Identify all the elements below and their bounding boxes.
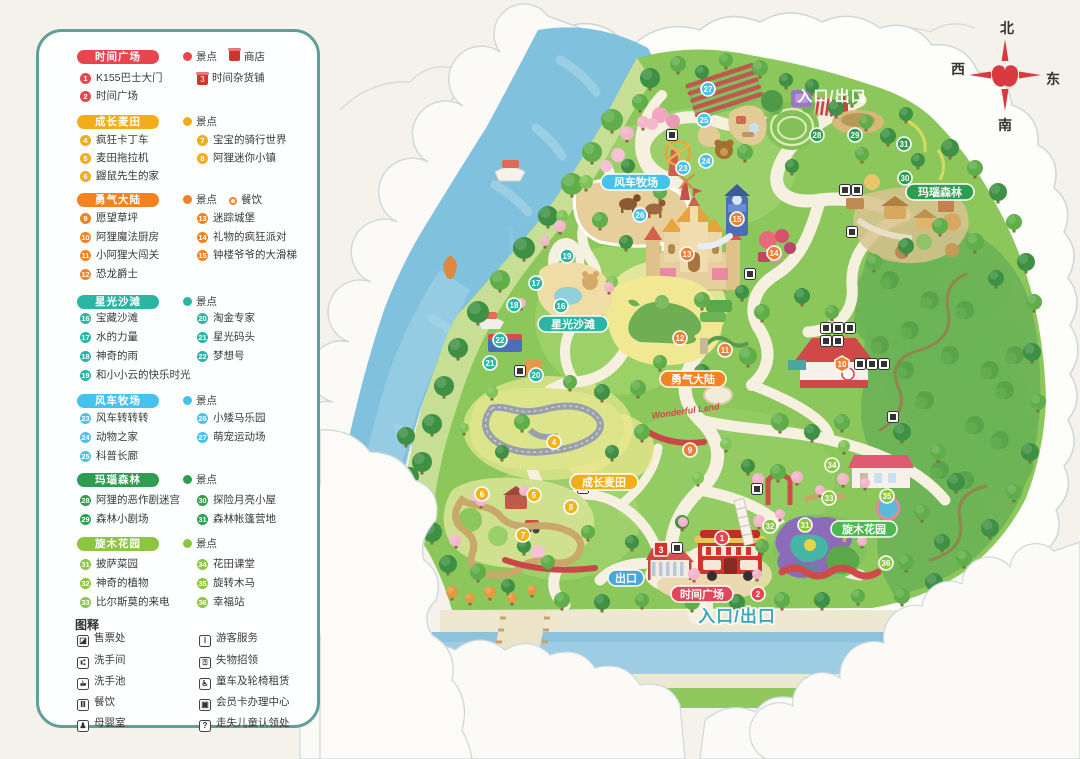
svg-text:玛瑙森林: 玛瑙森林 xyxy=(918,185,962,199)
svg-text:入口/出口: 入口/出口 xyxy=(797,87,866,105)
svg-text:32: 32 xyxy=(766,522,775,531)
svg-text:时间广场: 时间广场 xyxy=(680,587,724,601)
svg-text:27: 27 xyxy=(704,85,713,94)
svg-text:北: 北 xyxy=(1000,20,1014,36)
svg-text:4: 4 xyxy=(552,438,557,447)
svg-text:25: 25 xyxy=(700,116,709,125)
svg-text:24: 24 xyxy=(702,157,711,166)
svg-text:36: 36 xyxy=(882,559,891,568)
svg-text:19: 19 xyxy=(563,252,572,261)
svg-text:2: 2 xyxy=(756,590,761,599)
svg-text:22: 22 xyxy=(496,336,505,345)
svg-text:17: 17 xyxy=(532,279,541,288)
svg-text:入口/出口: 入口/出口 xyxy=(698,606,776,626)
svg-text:33: 33 xyxy=(825,494,834,503)
svg-text:9: 9 xyxy=(688,446,693,455)
svg-text:风车牧场: 风车牧场 xyxy=(614,175,658,189)
svg-text:南: 南 xyxy=(998,117,1012,133)
svg-text:8: 8 xyxy=(569,503,574,512)
svg-text:12: 12 xyxy=(676,334,685,343)
svg-text:35: 35 xyxy=(883,492,892,501)
svg-text:7: 7 xyxy=(521,531,526,540)
svg-text:21: 21 xyxy=(486,359,495,368)
svg-text:14: 14 xyxy=(770,249,779,258)
svg-text:东: 东 xyxy=(1046,71,1060,87)
svg-text:30: 30 xyxy=(901,174,910,183)
svg-text:旋木花园: 旋木花园 xyxy=(841,522,886,536)
svg-text:16: 16 xyxy=(557,302,566,311)
svg-text:13: 13 xyxy=(683,250,692,259)
svg-text:5: 5 xyxy=(532,491,537,500)
svg-text:星光沙滩: 星光沙滩 xyxy=(551,317,595,331)
svg-text:西: 西 xyxy=(951,61,965,77)
svg-text:成长麦田: 成长麦田 xyxy=(582,475,626,489)
svg-text:出口: 出口 xyxy=(615,571,637,585)
svg-text:26: 26 xyxy=(636,211,645,220)
svg-text:10: 10 xyxy=(838,360,847,369)
svg-text:6: 6 xyxy=(480,490,485,499)
svg-text:11: 11 xyxy=(721,346,730,355)
svg-text:34: 34 xyxy=(828,461,837,470)
svg-text:31: 31 xyxy=(900,140,909,149)
svg-text:29: 29 xyxy=(851,131,860,140)
svg-text:31: 31 xyxy=(801,521,810,530)
svg-text:18: 18 xyxy=(510,301,519,310)
svg-text:23: 23 xyxy=(679,164,688,173)
svg-text:20: 20 xyxy=(532,371,541,380)
svg-text:15: 15 xyxy=(733,215,742,224)
svg-text:28: 28 xyxy=(813,131,822,140)
svg-text:3: 3 xyxy=(658,545,663,555)
svg-text:勇气大陆: 勇气大陆 xyxy=(671,372,715,386)
svg-text:1: 1 xyxy=(720,534,725,543)
